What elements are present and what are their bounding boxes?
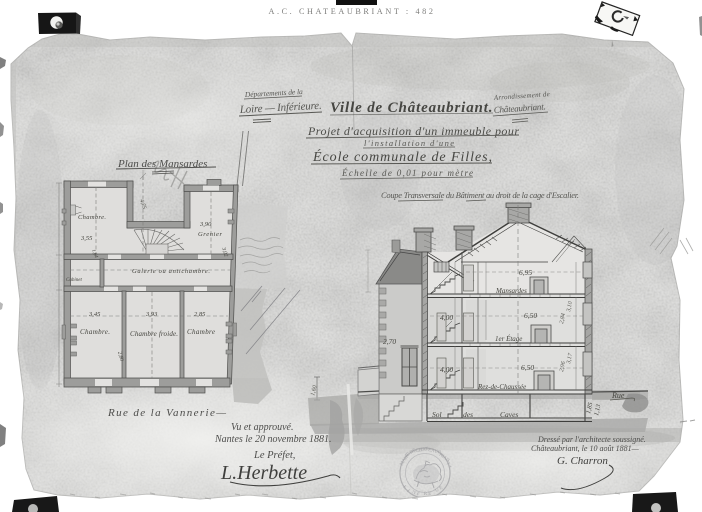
svg-text:Nantes le 20 novembre 1881.: Nantes le 20 novembre 1881. <box>214 434 332 445</box>
svg-text:Mansardes: Mansardes <box>495 287 527 295</box>
svg-text:Chambre.: Chambre. <box>78 214 106 221</box>
svg-text:6,95: 6,95 <box>519 268 532 277</box>
svg-text:3,45: 3,45 <box>88 311 101 318</box>
svg-text:Coupe Transversale du Bâtiment: Coupe Transversale du Bâtiment au droit … <box>381 190 579 200</box>
svg-text:des: des <box>463 410 473 419</box>
svg-text:1er Étage: 1er Étage <box>495 335 522 343</box>
svg-text:Caves: Caves <box>500 410 518 419</box>
svg-text:Chambre: Chambre <box>187 328 215 336</box>
svg-text:l'installation d'une: l'installation d'une <box>364 138 454 148</box>
svg-text:Châteaubriant, le 10 août 1881: Châteaubriant, le 10 août 1881— <box>531 444 640 453</box>
svg-text:2,70: 2,70 <box>383 337 396 346</box>
svg-text:Vu et approuvé.: Vu et approuvé. <box>231 422 293 433</box>
svg-text:3,55: 3,55 <box>80 235 93 242</box>
svg-text:Le Préfet,: Le Préfet, <box>253 450 295 461</box>
svg-text:G. Charron: G. Charron <box>557 455 608 467</box>
svg-text:Rez-de-Chaussée: Rez-de-Chaussée <box>477 383 526 391</box>
svg-text:Galerie ou antichambre.: Galerie ou antichambre. <box>132 268 210 275</box>
svg-text:A.C. CHATEAUBRIANT : 482: A.C. CHATEAUBRIANT : 482 <box>268 7 435 16</box>
svg-text:4,00: 4,00 <box>440 313 453 322</box>
svg-text:École communale de Filles,: École communale de Filles, <box>312 148 492 165</box>
svg-text:3,93: 3,93 <box>145 311 158 318</box>
svg-text:6,50: 6,50 <box>524 311 537 320</box>
svg-text:L.Herbette: L.Herbette <box>220 462 307 484</box>
svg-text:3,90: 3,90 <box>199 221 212 228</box>
svg-text:Grenier: Grenier <box>198 231 222 238</box>
svg-text:Échelle de 0,01 pour mètre: Échelle de 0,01 pour mètre <box>341 168 473 178</box>
svg-text:Rue de la Vannerie—: Rue de la Vannerie— <box>107 407 226 419</box>
svg-text:Projet d'acquisition d'un imme: Projet d'acquisition d'un immeuble pour <box>307 124 519 138</box>
svg-text:2,85: 2,85 <box>194 311 206 318</box>
svg-text:Chambre froide.: Chambre froide. <box>130 330 178 338</box>
svg-text:4,00: 4,00 <box>440 365 453 374</box>
svg-text:Chambre.: Chambre. <box>80 328 110 336</box>
svg-text:6,50: 6,50 <box>521 363 534 372</box>
svg-text:Dressé par l'architecte soussi: Dressé par l'architecte soussigné. <box>537 435 646 444</box>
svg-text:Sol: Sol <box>432 410 442 419</box>
svg-text:Cabinet: Cabinet <box>66 278 82 283</box>
